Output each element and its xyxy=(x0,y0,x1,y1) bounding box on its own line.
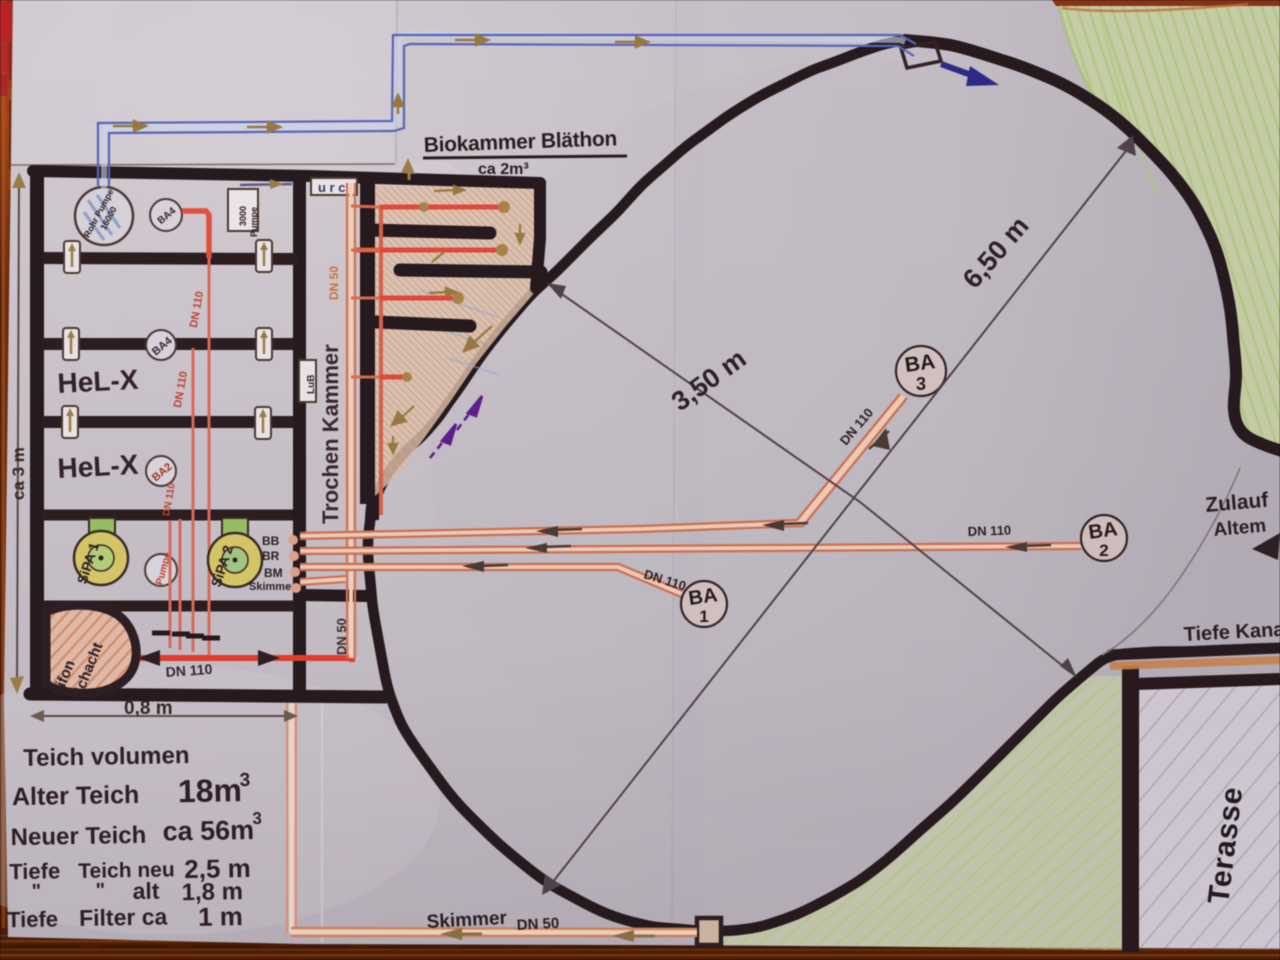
svg-text:3: 3 xyxy=(252,809,262,828)
svg-text:Skimmer: Skimmer xyxy=(249,581,296,593)
svg-text:Filter ca: Filter ca xyxy=(79,903,168,931)
svg-text:Neuer Teich: Neuer Teich xyxy=(10,822,146,851)
svg-text:3: 3 xyxy=(240,770,251,791)
svg-text:ca 3 m: ca 3 m xyxy=(9,447,28,500)
svg-text:Trochen Kammer: Trochen Kammer xyxy=(318,344,343,524)
svg-text:ca 56m: ca 56m xyxy=(162,815,254,847)
svg-text:HeL-X: HeL-X xyxy=(57,364,140,399)
svg-text:BB: BB xyxy=(262,534,280,548)
svg-text:DN 110: DN 110 xyxy=(968,522,1012,539)
svg-text:u r c: u r c xyxy=(318,180,345,195)
svg-text:Teich volumen: Teich volumen xyxy=(23,742,190,772)
svg-text:DN 50: DN 50 xyxy=(516,915,559,934)
svg-text:Skimmer: Skimmer xyxy=(426,908,508,933)
svg-text:DN 110: DN 110 xyxy=(165,661,213,680)
svg-text:HeL-X: HeL-X xyxy=(57,449,140,484)
svg-text:DN 50: DN 50 xyxy=(327,266,341,300)
svg-text:2: 2 xyxy=(1099,541,1108,560)
svg-text:1: 1 xyxy=(699,607,708,626)
svg-text:3: 3 xyxy=(916,374,926,394)
svg-text:BM: BM xyxy=(264,566,283,580)
svg-text:LuB: LuB xyxy=(306,375,317,394)
svg-text:Teich neu: Teich neu xyxy=(78,858,175,883)
svg-text:": " xyxy=(95,880,105,902)
svg-text:alt: alt xyxy=(132,878,160,904)
svg-text:Tiefe: Tiefe xyxy=(7,906,58,932)
svg-text:DN 50: DN 50 xyxy=(334,618,349,655)
svg-text:Pumpe: Pumpe xyxy=(249,207,259,237)
svg-text:BR: BR xyxy=(262,549,280,563)
svg-text:0,8 m: 0,8 m xyxy=(124,698,173,719)
svg-text:ca 2m³: ca 2m³ xyxy=(478,161,529,178)
svg-text:1 m: 1 m xyxy=(198,901,243,932)
svg-text:18m: 18m xyxy=(178,772,243,809)
svg-text:": " xyxy=(31,881,41,903)
svg-text:Alter Teich: Alter Teich xyxy=(12,781,140,811)
svg-text:3000: 3000 xyxy=(238,206,248,226)
